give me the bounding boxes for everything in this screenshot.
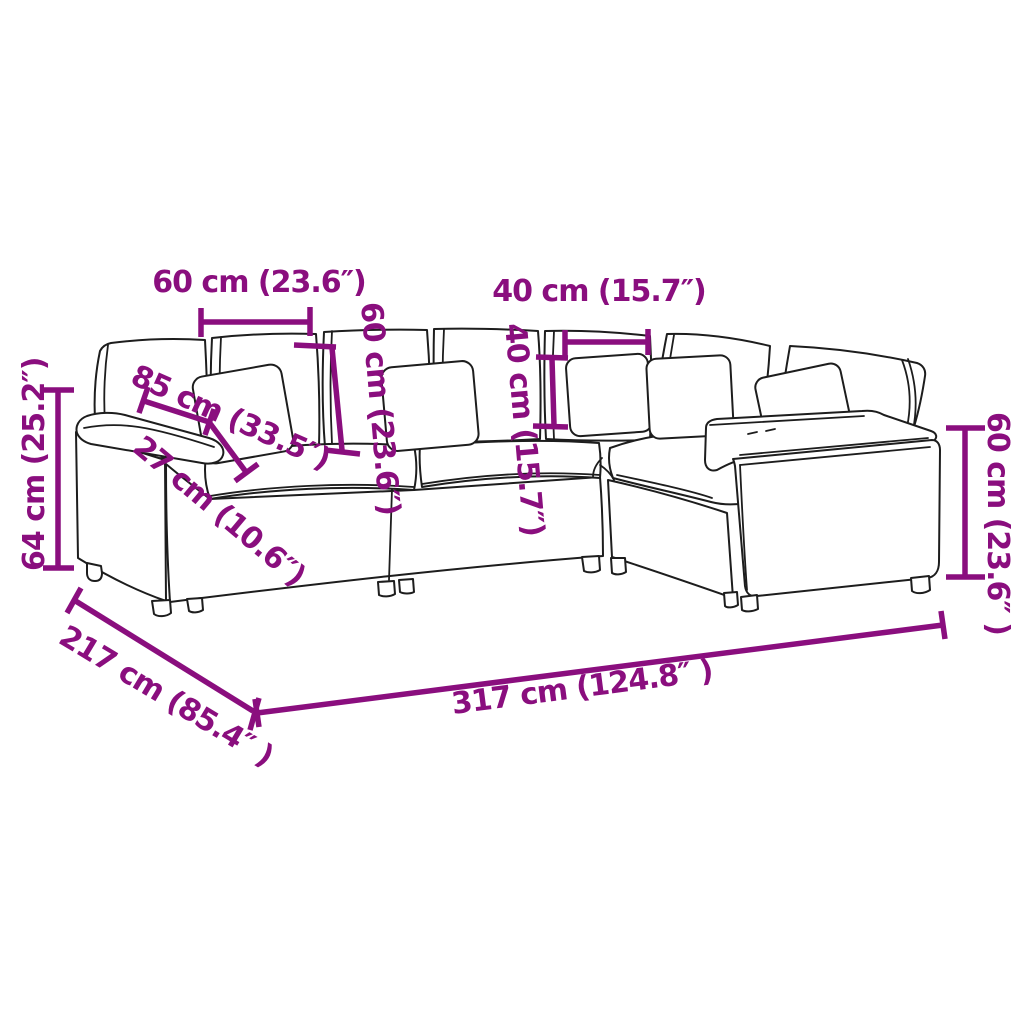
sofa-leg	[741, 595, 758, 611]
dim-line	[552, 359, 554, 425]
sofa-leg	[582, 556, 600, 572]
dim-right-height: 60 cm (23.6″ )	[946, 412, 1015, 635]
dim-label-back-cushion-width: 60 cm (23.6″)	[152, 265, 366, 300]
sofa-leg	[399, 579, 414, 594]
diagram-canvas: 60 cm (23.6″) 40 cm (15.7″) 85 cm (33.5″…	[0, 0, 1024, 1024]
dim-tick	[536, 357, 568, 358]
dim-label-total-depth: 217 cm (85.4″ )	[53, 619, 279, 774]
sofa-leg	[87, 563, 102, 581]
dim-label-total-width: 317 cm (124.8″ )	[450, 653, 715, 722]
pillow	[565, 353, 652, 437]
sofa-leg	[152, 600, 171, 616]
dim-back-cushion-width: 60 cm (23.6″)	[152, 265, 366, 337]
dim-total-width: 317 cm (124.8″ )	[255, 611, 945, 727]
dim-label-pillow-width: 40 cm (15.7″)	[492, 274, 706, 309]
dim-label-right-height: 60 cm (23.6″ )	[980, 412, 1015, 635]
sofa-leg	[724, 592, 738, 607]
dim-left-height: 64 cm (25.2″)	[17, 357, 74, 571]
sofa-leg	[378, 581, 395, 596]
sofa-leg	[911, 576, 930, 593]
dim-tick	[941, 611, 945, 639]
dim-label-left-height: 64 cm (25.2″)	[17, 357, 52, 571]
dimension-diagram: 60 cm (23.6″) 40 cm (15.7″) 85 cm (33.5″…	[0, 0, 1024, 1024]
sofa-leg	[611, 558, 626, 574]
dim-tick	[294, 345, 336, 347]
sofa-leg	[187, 598, 203, 612]
